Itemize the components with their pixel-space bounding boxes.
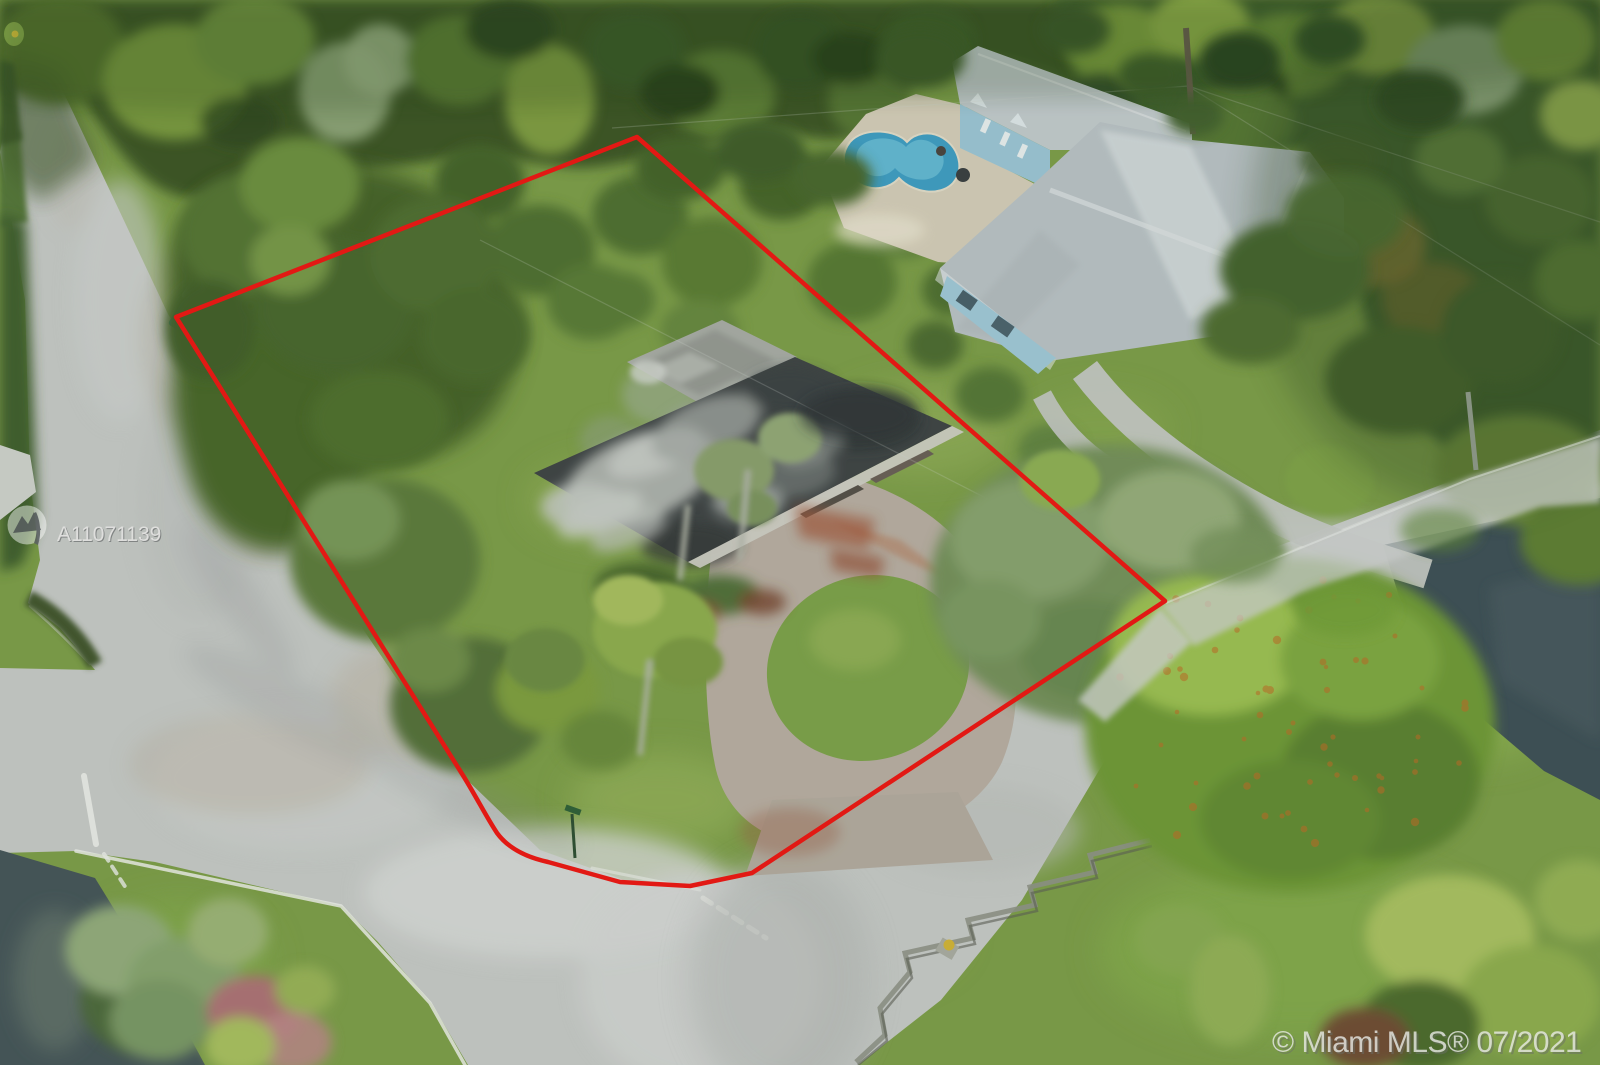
svg-text:A11071139: A11071139	[57, 523, 161, 546]
svg-text:© Miami MLS® 07/2021: © Miami MLS® 07/2021	[1272, 1026, 1581, 1059]
